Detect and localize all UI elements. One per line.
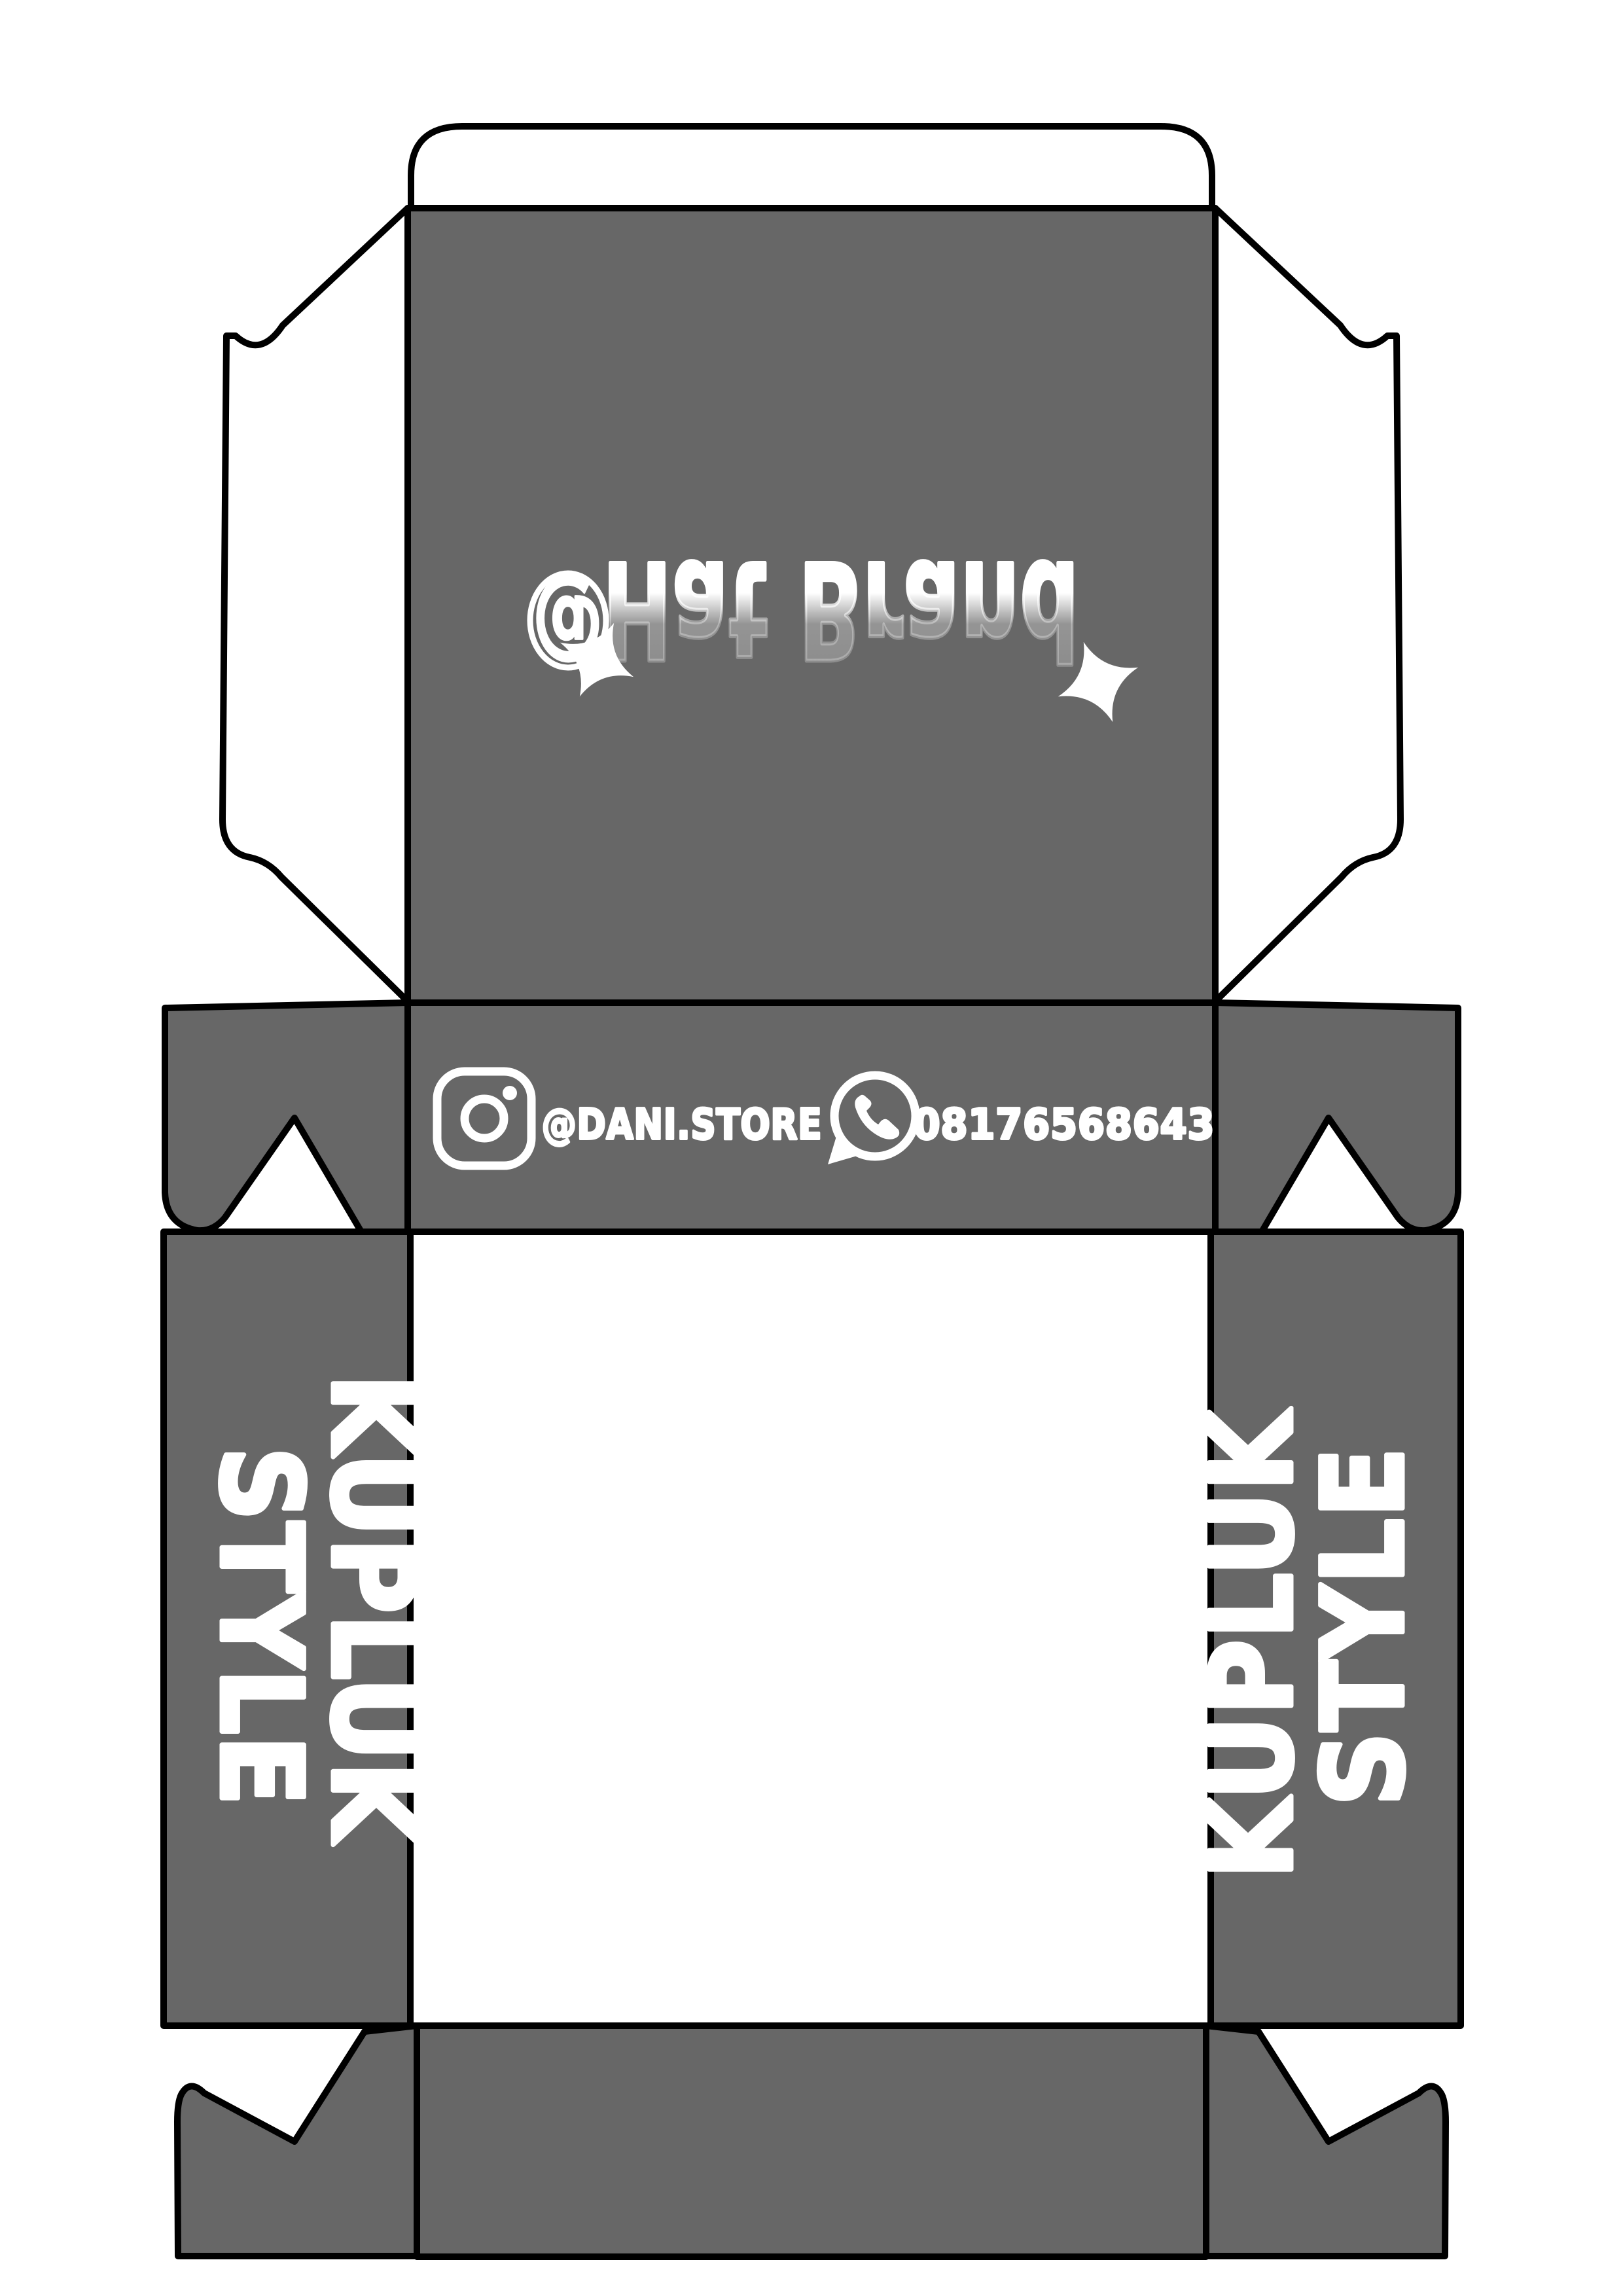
bottom-panel	[417, 2026, 1206, 2257]
bottom-flap-right	[1206, 2026, 1446, 2256]
dieline-page: @ Hat Brand @DANI.STORE 08176568643 KUPL…	[0, 0, 1623, 2296]
lid-dust-flap-right	[1215, 208, 1400, 1001]
strip-flap-left	[165, 1003, 408, 1232]
side-panel-right-text: KUPLUK STYLE	[1187, 1374, 1429, 1879]
instagram-handle-text: @DANI.STORE	[542, 1100, 823, 1149]
packaging-dieline-canvas: @ Hat Brand @DANI.STORE 08176568643 KUPL…	[0, 0, 1623, 2296]
brand-name-text: Hat Brand	[602, 531, 1079, 687]
lid-tuck-flap	[411, 126, 1212, 208]
front-panel	[410, 1232, 1211, 2026]
bottom-flap-left	[177, 2026, 417, 2256]
side-text-line2: STYLE	[1298, 1446, 1429, 1806]
side-panel-left-text: KUPLUK STYLE	[195, 1374, 437, 1879]
lid-dust-flap-left	[223, 208, 408, 1001]
whatsapp-number-text: 08176568643	[914, 1100, 1215, 1149]
strip-flap-right	[1215, 1003, 1458, 1232]
side-text-line2: STYLE	[195, 1446, 326, 1806]
